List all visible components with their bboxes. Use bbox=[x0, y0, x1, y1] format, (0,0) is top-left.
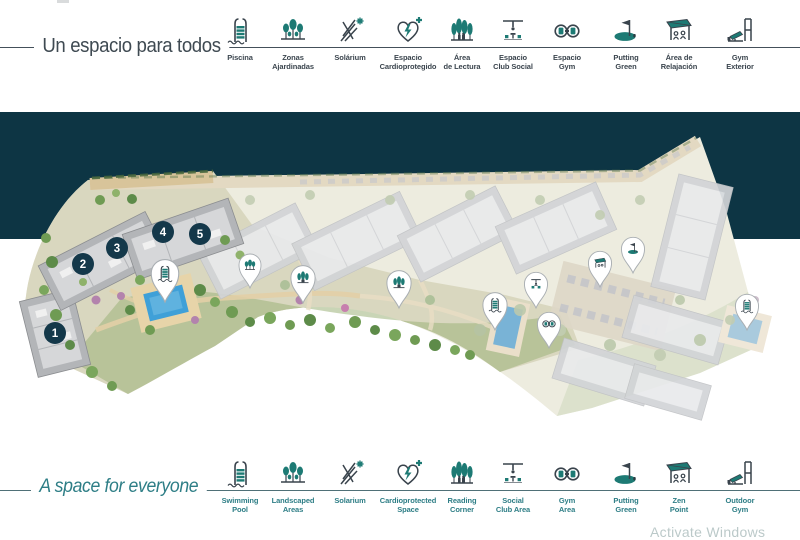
watermark-text: Activate Windows bbox=[650, 524, 765, 540]
legend-item-gym-exterior: GymExterior bbox=[705, 8, 775, 71]
legend-item-zen-point: ZenPoint bbox=[644, 451, 714, 514]
building-marker-3[interactable]: 3 bbox=[106, 237, 128, 259]
legend-label-gym-exterior: GymExterior bbox=[705, 53, 775, 71]
svg-text:4: 4 bbox=[160, 227, 167, 239]
gym-machine-icon bbox=[705, 451, 775, 491]
svg-text:5: 5 bbox=[197, 229, 204, 241]
crop-artifact bbox=[57, 0, 69, 3]
bottom-legend-title: A space for everyone bbox=[31, 476, 207, 498]
building-marker-5[interactable]: 5 bbox=[189, 223, 211, 245]
top-legend-title: Un espacio para todos bbox=[34, 35, 229, 58]
legend-label-outdoor-gym: OutdoorGym bbox=[705, 496, 775, 514]
legend-item-area-de-relajacion: Área deRelajación bbox=[644, 8, 714, 71]
awning-icon bbox=[644, 8, 714, 48]
legend-label-zen-point: ZenPoint bbox=[644, 496, 714, 514]
svg-text:2: 2 bbox=[80, 259, 86, 271]
legend-item-outdoor-gym: OutdoorGym bbox=[705, 451, 775, 514]
svg-text:1: 1 bbox=[52, 328, 59, 340]
building-marker-4[interactable]: 4 bbox=[152, 221, 174, 243]
svg-text:3: 3 bbox=[114, 243, 120, 255]
gym-machine-icon bbox=[705, 8, 775, 48]
building-marker-1[interactable]: 1 bbox=[44, 322, 66, 344]
legend-label-area-de-relajacion: Área deRelajación bbox=[644, 53, 714, 71]
awning-icon bbox=[644, 451, 714, 491]
building-marker-2[interactable]: 2 bbox=[72, 253, 94, 275]
